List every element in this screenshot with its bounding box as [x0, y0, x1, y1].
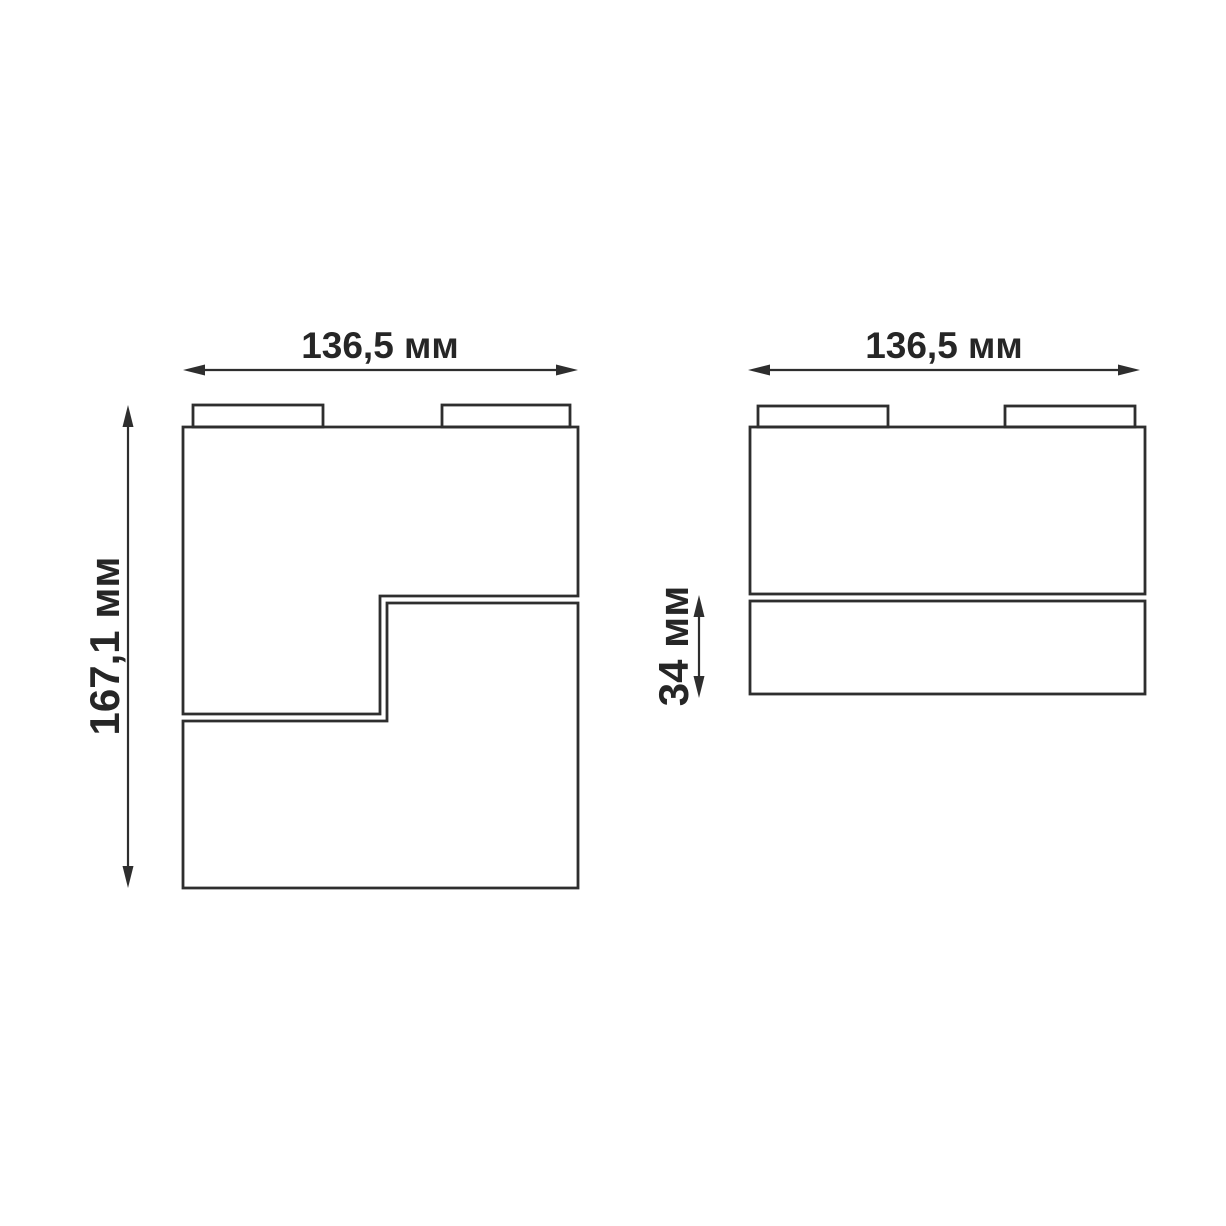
- side-upper-body-outline: [750, 427, 1145, 594]
- front-left-mount-tab: [193, 405, 323, 427]
- front-width-dimension-label: 136,5 мм: [301, 325, 459, 366]
- side-width-arrowhead-left: [748, 365, 770, 376]
- front-height-arrowhead-top: [123, 405, 134, 427]
- front-right-mount-tab: [442, 405, 570, 427]
- front-view: 136,5 мм 167,1 мм: [81, 325, 578, 888]
- side-right-mount-tab: [1005, 406, 1135, 427]
- side-depth-dimension: 34 мм: [650, 586, 705, 707]
- technical-drawing: 136,5 мм 167,1 мм: [0, 0, 1226, 1226]
- front-width-dimension: 136,5 мм: [183, 325, 578, 376]
- side-depth-dimension-label: 34 мм: [650, 586, 697, 707]
- side-view: 136,5 мм 34 мм: [650, 325, 1145, 706]
- front-width-arrowhead-right: [556, 365, 578, 376]
- side-width-dimension: 136,5 мм: [748, 325, 1140, 376]
- front-height-arrowhead-bottom: [123, 866, 134, 888]
- front-upper-body-outline: [183, 427, 578, 714]
- front-width-arrowhead-left: [183, 365, 205, 376]
- front-height-dimension-label: 167,1 мм: [81, 557, 128, 736]
- side-width-arrowhead-right: [1118, 365, 1140, 376]
- side-lower-body-outline: [750, 601, 1145, 694]
- front-height-dimension: 167,1 мм: [81, 405, 134, 888]
- technical-drawing-page: 136,5 мм 167,1 мм: [0, 0, 1226, 1226]
- side-width-dimension-label: 136,5 мм: [865, 325, 1023, 366]
- side-left-mount-tab: [758, 406, 888, 427]
